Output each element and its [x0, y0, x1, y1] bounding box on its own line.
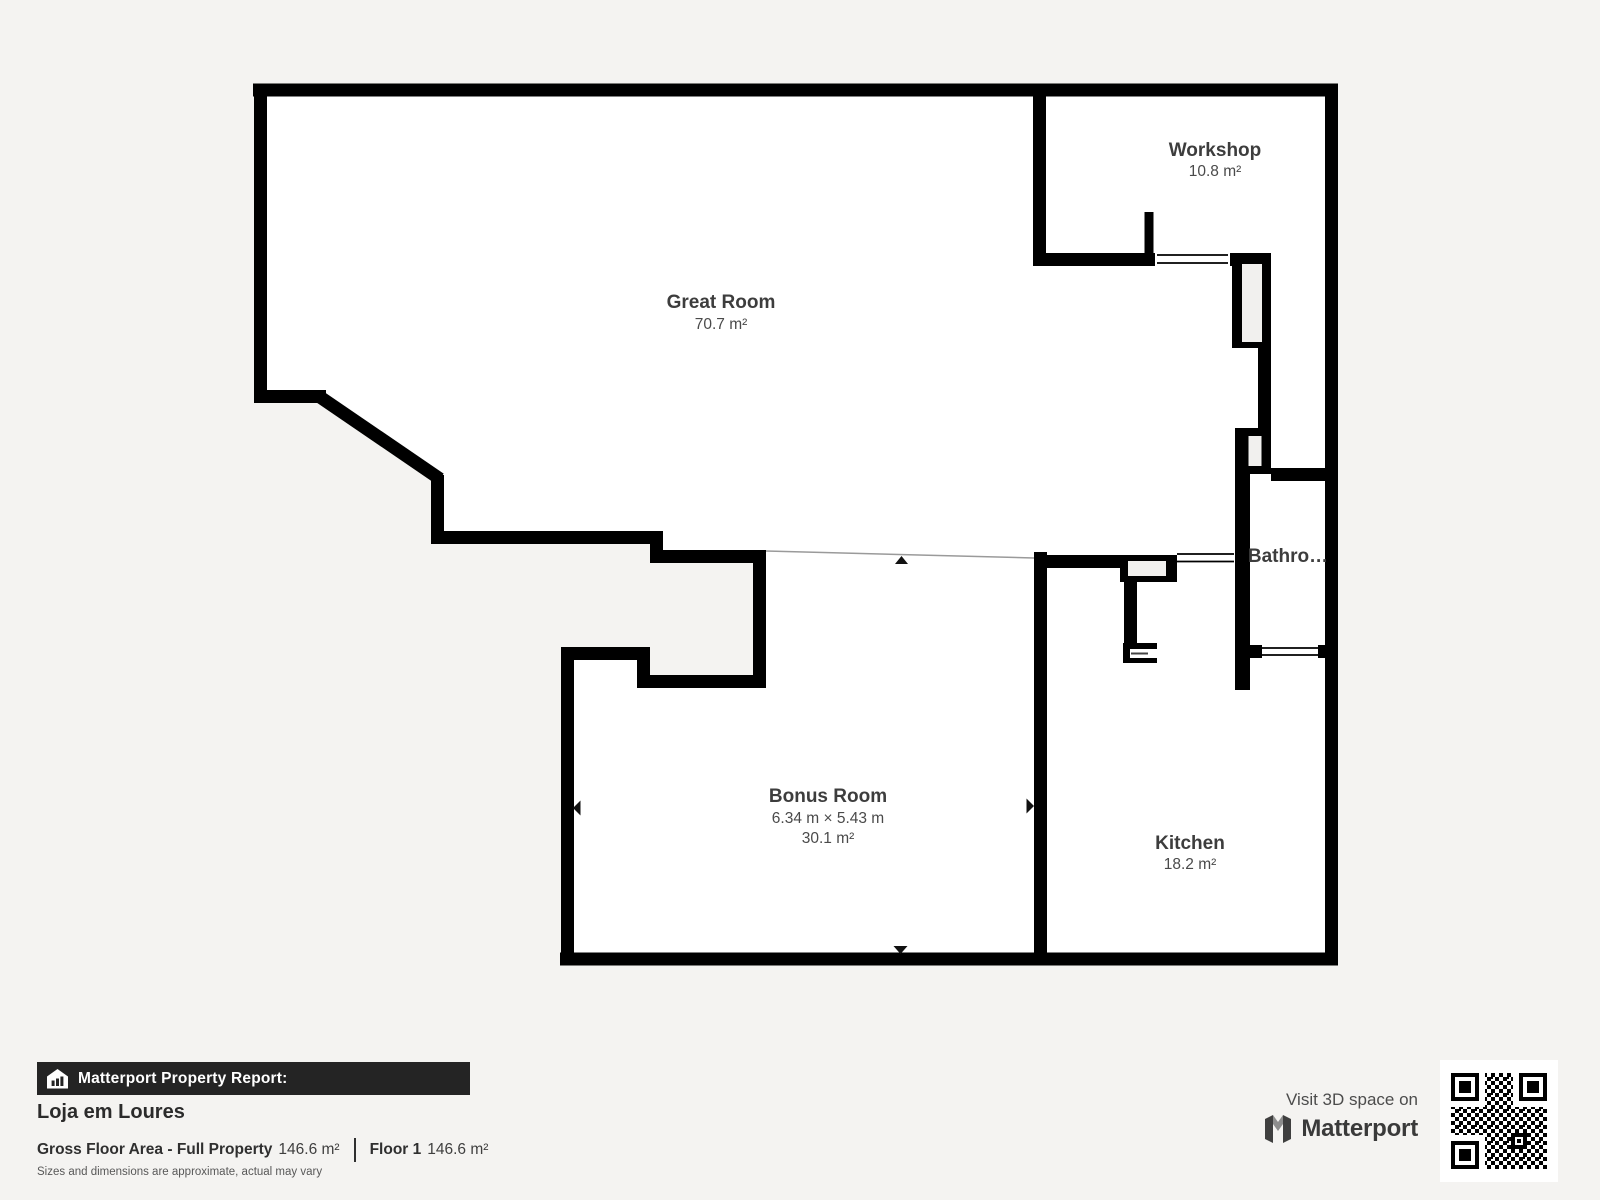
floor-area	[260, 90, 1332, 959]
duct-fill	[1242, 264, 1262, 342]
room-label-great-room: Great Room	[667, 292, 776, 313]
room-area-great-room: 70.7 m²	[695, 316, 748, 333]
room-label-kitchen: Kitchen	[1155, 833, 1225, 854]
duct-fill	[1249, 436, 1262, 466]
duct-fill	[1128, 561, 1166, 576]
floor-plan: Great Room 70.7 m² Workshop 10.8 m² Bath…	[0, 0, 1600, 1200]
qr-code	[1451, 1073, 1547, 1169]
matterport-logo	[1265, 1114, 1291, 1144]
visit-3d-text: Visit 3D space on	[1265, 1090, 1418, 1110]
report-banner: Matterport Property Report:	[37, 1062, 470, 1095]
matterport-wordmark: Matterport	[1301, 1115, 1418, 1143]
room-label-workshop: Workshop	[1169, 140, 1262, 161]
door-opening	[1262, 644, 1318, 659]
gross-floor-area-label: Gross Floor Area - Full Property	[37, 1141, 272, 1159]
floor-value: 146.6 m²	[427, 1141, 488, 1159]
property-name: Loja em Loures	[37, 1101, 185, 1124]
room-dims-bonus-room: 6.34 m × 5.43 m	[772, 810, 884, 827]
room-area-bonus-room: 30.1 m²	[802, 830, 855, 847]
room-area-kitchen: 18.2 m²	[1164, 856, 1217, 873]
room-label-bathroom: Bathro…	[1248, 546, 1328, 567]
gross-floor-area-value: 146.6 m²	[278, 1141, 339, 1159]
disclaimer-note: Sizes and dimensions are approximate, ac…	[37, 1166, 322, 1178]
room-area-workshop: 10.8 m²	[1189, 163, 1242, 180]
floor-label: Floor 1	[370, 1141, 422, 1159]
floor-area-metrics: Gross Floor Area - Full Property 146.6 m…	[37, 1138, 488, 1162]
metrics-divider	[354, 1138, 356, 1162]
report-banner-title: Matterport Property Report:	[78, 1070, 288, 1088]
room-label-bonus-room: Bonus Room	[769, 786, 887, 807]
matterport-promo: Visit 3D space on Matterport	[1265, 1090, 1418, 1144]
house-chart-icon	[47, 1069, 68, 1089]
qr-code-card	[1440, 1060, 1558, 1182]
